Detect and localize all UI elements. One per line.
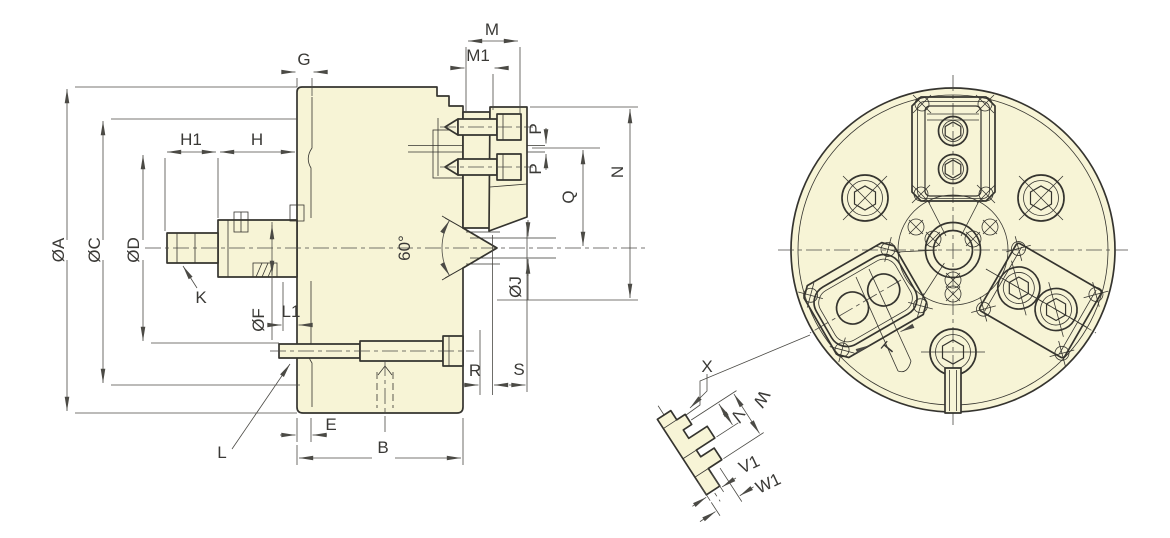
jaw-profile-detail: X V W V1 W1 (635, 357, 789, 527)
label-k: K (195, 288, 207, 307)
label-l: L (217, 443, 226, 462)
front-view: T (668, 75, 1128, 428)
label-s: S (513, 360, 524, 379)
label-x: X (701, 357, 712, 376)
label-phi-c: ØC (85, 237, 104, 263)
side-view: ØA ØC ØD ØF ØJ H1 H G M M1 P P Q N 60° K… (49, 20, 645, 465)
label-r: R (469, 361, 481, 380)
pinion-stub-bottom (945, 368, 961, 413)
label-p-bottom: P (526, 163, 545, 174)
label-w: W (749, 387, 773, 410)
label-q: Q (559, 190, 578, 203)
label-angle-60: 60° (395, 235, 414, 261)
drawing-canvas: ØA ØC ØD ØF ØJ H1 H G M M1 P P Q N 60° K… (0, 0, 1170, 538)
label-phi-d: ØD (124, 237, 143, 263)
label-m1: M1 (466, 46, 490, 65)
label-n: N (608, 166, 627, 178)
label-p-top: P (526, 123, 545, 134)
label-phi-a: ØA (49, 237, 68, 262)
label-v1: V1 (736, 451, 763, 477)
label-l1: L1 (282, 302, 301, 321)
label-h: H (251, 130, 263, 149)
label-h1: H1 (180, 130, 202, 149)
label-w1: W1 (753, 469, 784, 497)
chuck-technical-drawing: ØA ØC ØD ØF ØJ H1 H G M M1 P P Q N 60° K… (0, 0, 1170, 538)
label-m: M (485, 20, 499, 39)
label-phi-j: ØJ (506, 276, 525, 298)
pinion-shaft-assembly (167, 205, 304, 277)
label-g: G (297, 50, 310, 69)
label-phi-f: ØF (249, 308, 268, 332)
label-b: B (377, 438, 388, 457)
label-e: E (325, 415, 336, 434)
